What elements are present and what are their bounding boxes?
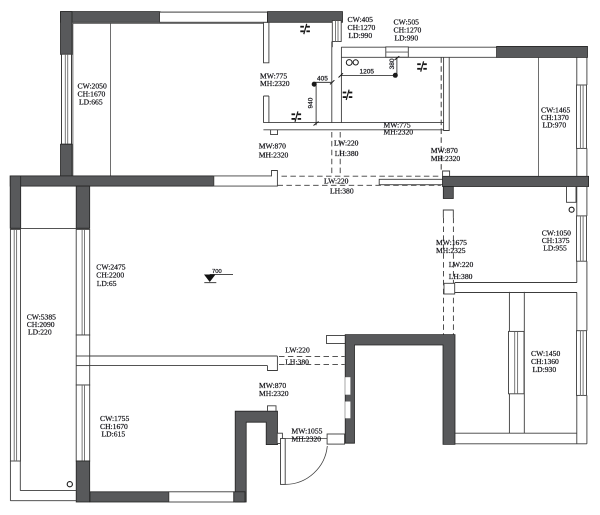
svg-text:MH:2320: MH:2320 xyxy=(259,150,289,159)
svg-text:LD:970: LD:970 xyxy=(543,120,567,129)
svg-text:MH:2325: MH:2325 xyxy=(436,246,466,255)
svg-text:MH:2320: MH:2320 xyxy=(260,79,290,88)
svg-text:LH:380: LH:380 xyxy=(330,186,354,195)
svg-text:MH:2320: MH:2320 xyxy=(431,154,461,163)
svg-text:LD:990: LD:990 xyxy=(349,31,373,40)
svg-text:LW:220: LW:220 xyxy=(285,346,310,355)
svg-text:MH:2320: MH:2320 xyxy=(292,435,322,444)
svg-text:MH:2320: MH:2320 xyxy=(384,128,414,137)
svg-text:LD:220: LD:220 xyxy=(28,328,52,337)
svg-text:LH:380: LH:380 xyxy=(449,272,473,281)
svg-text:LD:955: LD:955 xyxy=(543,243,567,252)
svg-text:LD:665: LD:665 xyxy=(79,98,103,107)
svg-text:LW:220: LW:220 xyxy=(334,139,359,148)
svg-text:LH:380: LH:380 xyxy=(285,358,309,367)
svg-text:700: 700 xyxy=(212,269,222,275)
svg-text:LW:220: LW:220 xyxy=(324,176,349,185)
svg-text:405: 405 xyxy=(317,75,328,82)
svg-text:LH:380: LH:380 xyxy=(335,149,359,158)
svg-text:LD:990: LD:990 xyxy=(395,34,419,43)
svg-text:1205: 1205 xyxy=(360,69,375,76)
svg-text:LD:65: LD:65 xyxy=(97,279,117,288)
svg-text:MW:870: MW:870 xyxy=(259,141,286,150)
svg-text:LD:930: LD:930 xyxy=(533,365,557,374)
svg-text:940: 940 xyxy=(308,97,315,108)
svg-text:LD:615: LD:615 xyxy=(102,429,126,438)
svg-text:380: 380 xyxy=(389,58,396,69)
svg-text:LW:220: LW:220 xyxy=(449,260,474,269)
svg-text:MH:2320: MH:2320 xyxy=(259,389,289,398)
